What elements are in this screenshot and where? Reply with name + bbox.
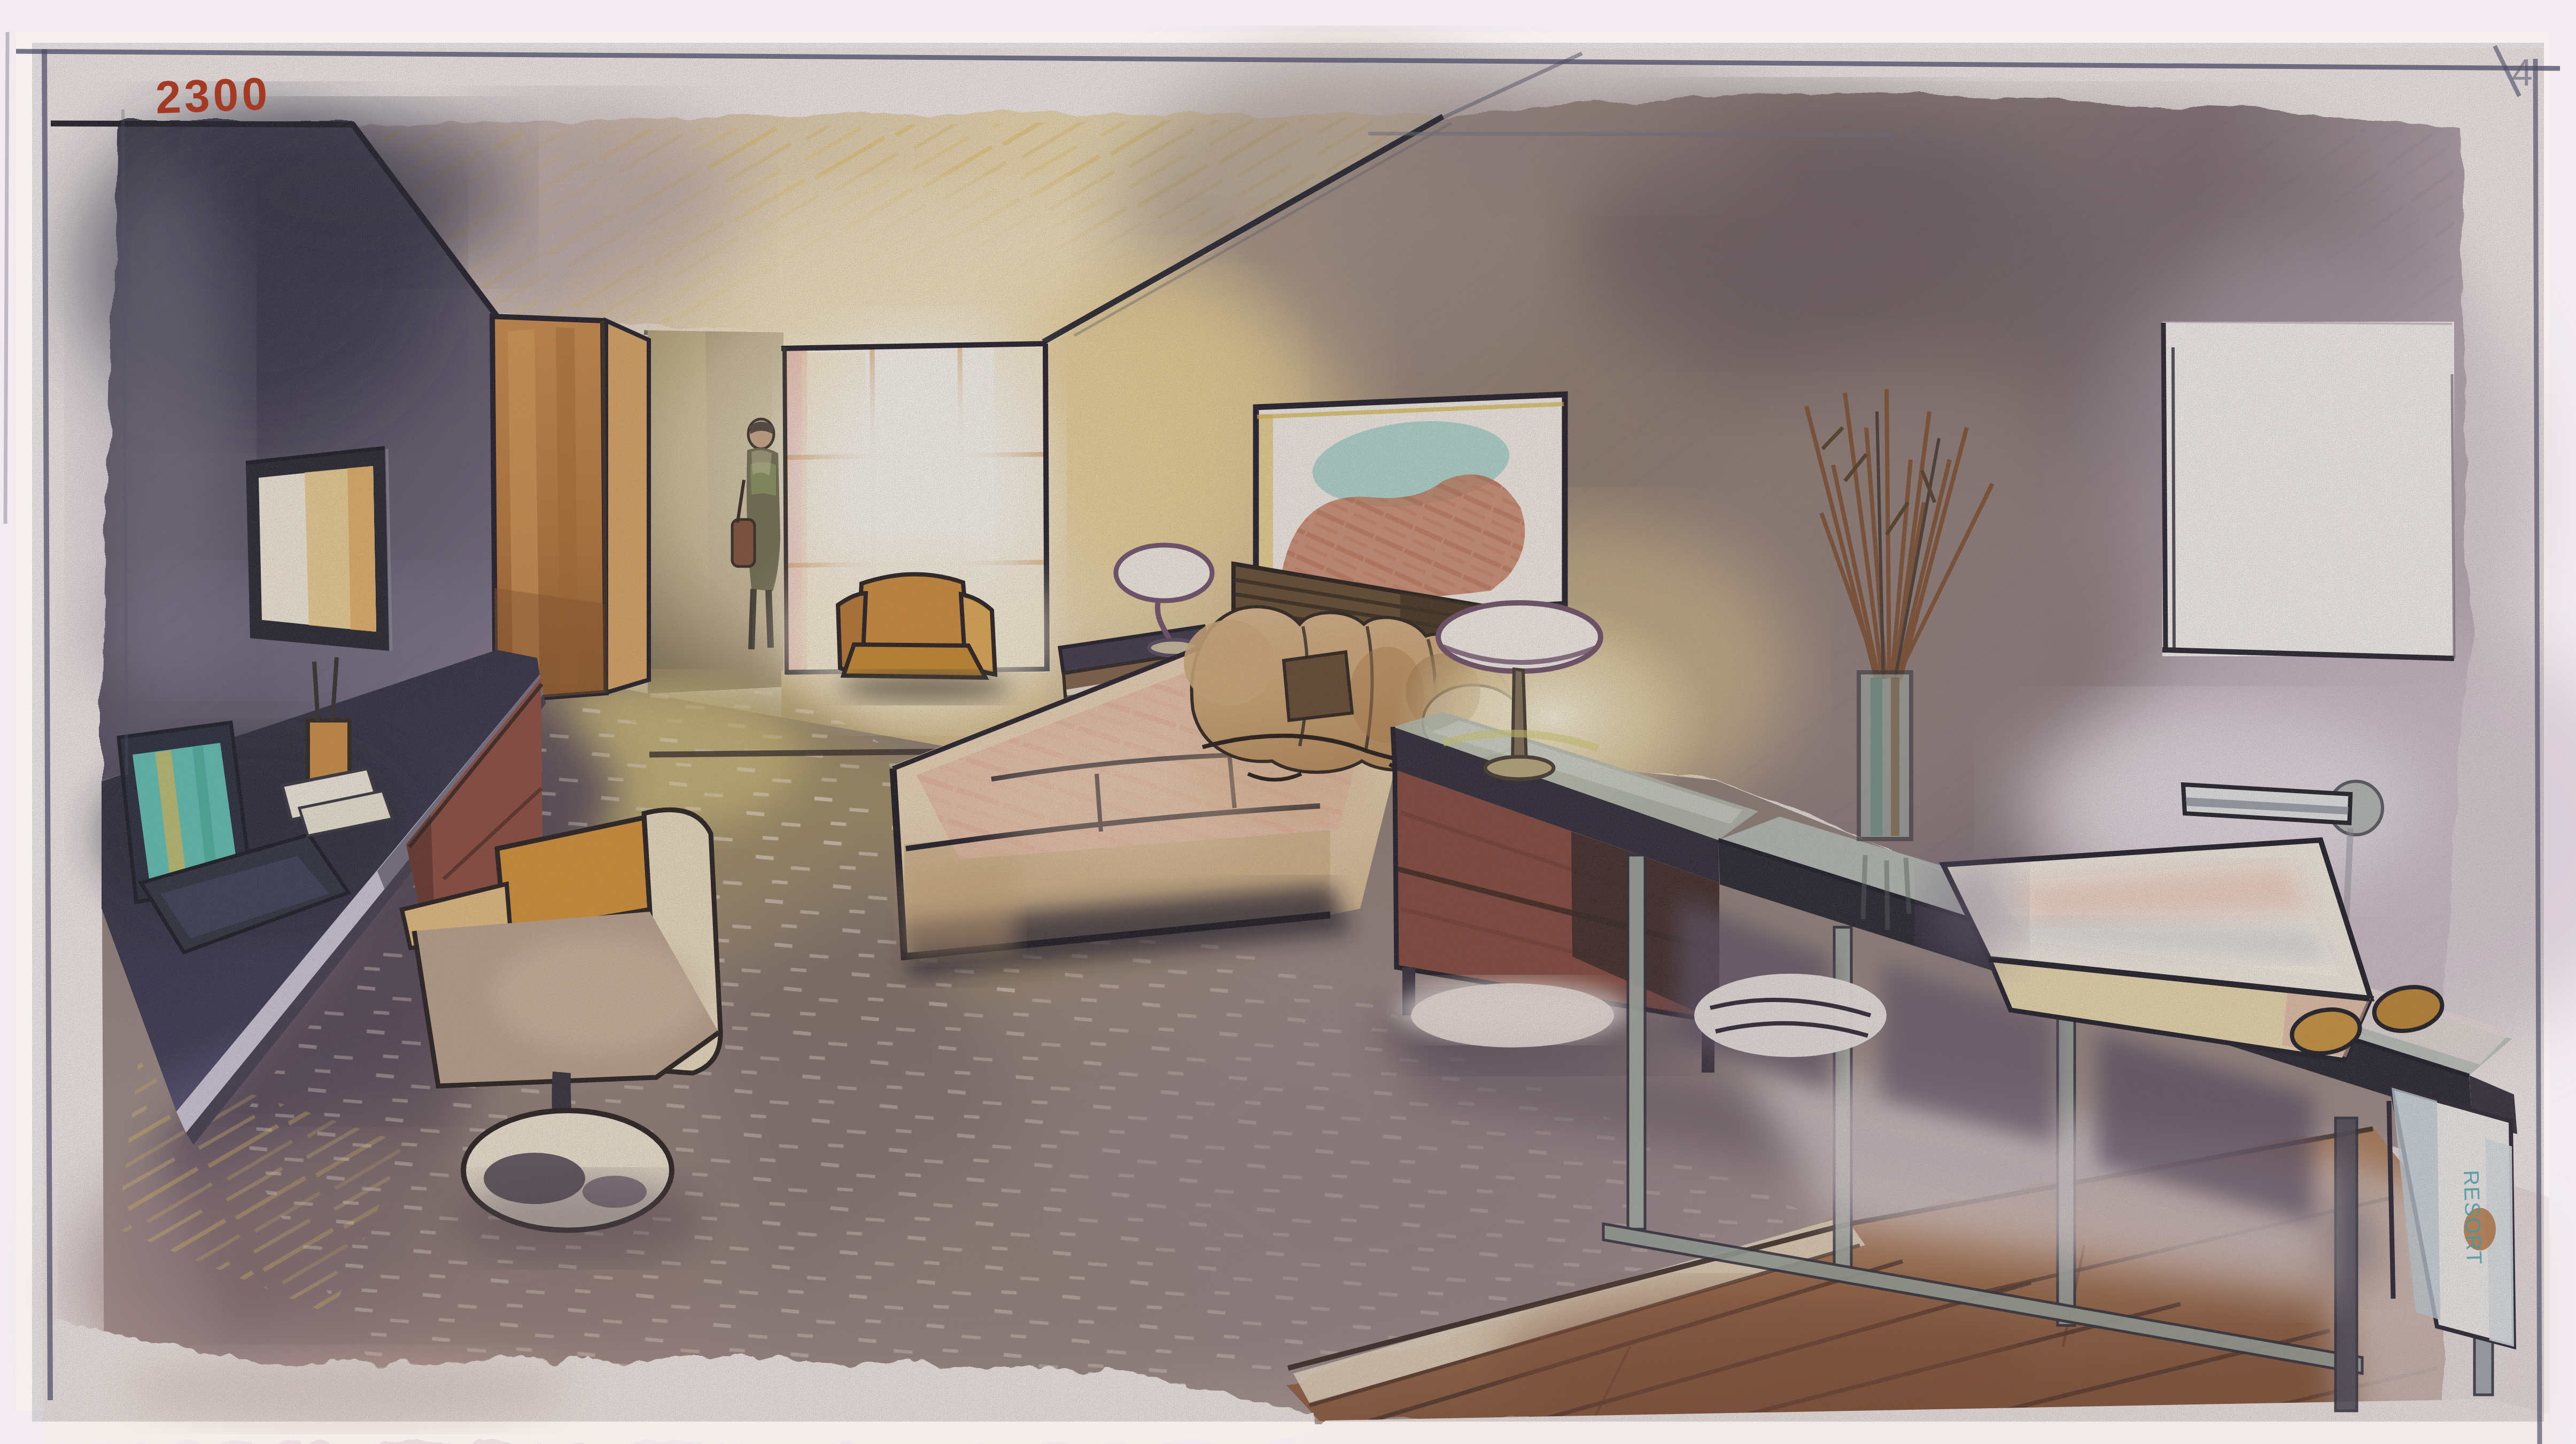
svg-text:4: 4: [2512, 52, 2533, 94]
svg-text:2300: 2300: [154, 68, 271, 123]
